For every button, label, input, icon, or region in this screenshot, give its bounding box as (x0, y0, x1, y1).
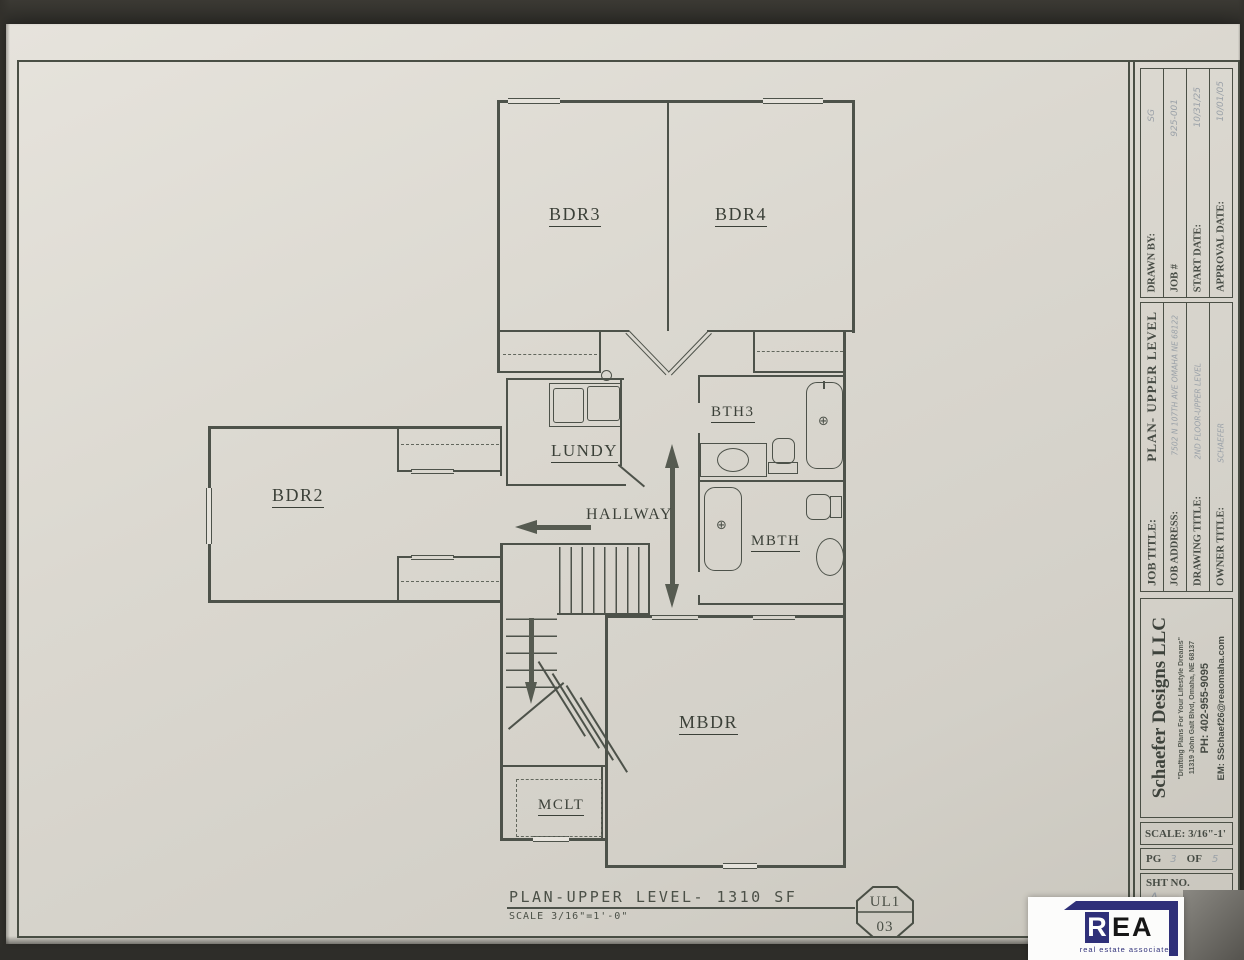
plan-title: PLAN-UPPER LEVEL- 1310 SF (509, 888, 797, 906)
closet-door-leaf (411, 469, 454, 474)
title-block-divider (1128, 60, 1130, 934)
drawn-by-label: DRAWN BY: (1147, 233, 1158, 292)
wall (397, 556, 412, 558)
wall (605, 615, 652, 618)
logo-r-box: R (1085, 912, 1109, 943)
job-title-value: PLAN- UPPER LEVEL (1144, 311, 1160, 462)
tub-drain-icon: ⊕ (716, 518, 727, 533)
toilet-base (768, 462, 798, 474)
firm-tagline-col: "Drafting Plans For Your Lifestyle Dream… (1176, 603, 1187, 813)
arrow-up-icon (665, 444, 679, 468)
plan-title-underline (507, 907, 855, 909)
sink-basin (816, 538, 844, 576)
room-label-mbth: MBTH (751, 533, 800, 552)
wall (397, 428, 399, 472)
firm-email-col: EM: SSchaef26@reaomaha.com (1212, 603, 1230, 813)
room-label-mbdr: MBDR (679, 712, 738, 735)
drawing-title-label: DRAWING TITLE: (1193, 496, 1204, 586)
titleblock-meta-box: SG DRAWN BY: 925-001 JOB # 10/31/25 STAR… (1140, 68, 1233, 298)
firm-email: EM: SSchaef26@reaomaha.com (1216, 636, 1227, 780)
washer-icon (553, 388, 584, 423)
room-label-bdr3: BDR3 (549, 204, 601, 227)
pg-label: PG (1141, 853, 1161, 865)
meta-col-start-date: 10/31/25 START DATE: (1186, 69, 1209, 297)
wall (707, 330, 855, 332)
owner-title-label: OWNER TITLE: (1216, 507, 1227, 586)
hallway-left-arrow-shaft (536, 525, 591, 530)
logo-letter-r: R (1087, 912, 1107, 942)
wall (497, 100, 500, 373)
wall (843, 331, 846, 868)
approval-date-value: 10/01/05 (1216, 81, 1226, 121)
job-title-label: JOB TITLE: (1145, 519, 1160, 586)
wall (453, 470, 502, 472)
firm-address-col: 11319 John Galt Blvd, Omaha, NE 68137 (1187, 603, 1198, 813)
logo-letter-e: E (1112, 912, 1130, 943)
titleblock-scale-box: SCALE: 3/16"-1' (1140, 822, 1233, 845)
wall (453, 556, 502, 558)
firm-address: 11319 John Galt Blvd, Omaha, NE 68137 (1189, 641, 1196, 774)
job-address-value: 7502 N 107TH AVE OMAHA NE 68122 (1171, 315, 1180, 456)
wall (208, 600, 502, 603)
wall (753, 332, 755, 373)
drawing-border-frame (17, 60, 1240, 938)
of-number: 5 (1202, 854, 1218, 865)
plan-scale-note: SCALE 3/16"=1'-0" (509, 911, 628, 922)
titles-col-drawing-title: 2ND FLOOR-UPPER LEVEL DRAWING TITLE: (1186, 303, 1209, 591)
titleblock-page-box: PG 3 OF 5 (1140, 848, 1233, 870)
wall (397, 558, 399, 602)
closet-shelf-dashed-outline (516, 779, 602, 837)
titles-col-job-address: 7502 N 107TH AVE OMAHA NE 68122 JOB ADDR… (1163, 303, 1186, 591)
wall (852, 100, 855, 333)
stairs-down-arrow-shaft (529, 618, 534, 684)
closet-rod-line (757, 351, 843, 352)
titles-col-owner-title: SCHAEFER OWNER TITLE: (1209, 303, 1232, 591)
firm-name: Schaefer Designs LLC (1149, 617, 1171, 798)
start-date-value: 10/31/25 (1193, 87, 1203, 127)
closet-rod-line (401, 444, 499, 445)
of-label: OF (1177, 853, 1202, 865)
arrow-down-icon (525, 682, 537, 704)
dryer-icon (587, 386, 620, 421)
window (206, 488, 212, 544)
meta-col-job-no: 925-001 JOB # (1163, 69, 1186, 297)
arrow-down-icon (665, 584, 679, 608)
pg-number: 3 (1161, 854, 1176, 865)
room-label-bth3: BTH3 (711, 404, 755, 423)
toilet-bowl (772, 438, 795, 464)
svg-text:UL1: UL1 (870, 894, 901, 910)
room-label-bdr2: BDR2 (272, 485, 324, 508)
firm-name-col: Schaefer Designs LLC (1143, 603, 1176, 813)
wall (500, 543, 503, 840)
titleblock-titles-box: PLAN- UPPER LEVEL JOB TITLE: 7502 N 107T… (1140, 302, 1233, 592)
wall (397, 470, 412, 472)
firm-tagline: "Drafting Plans For Your Lifestyle Dream… (1178, 637, 1185, 780)
wall (698, 480, 845, 482)
wall (500, 543, 650, 545)
job-address-label: JOB ADDRESS: (1170, 511, 1181, 586)
window (763, 98, 823, 104)
scale-value: SCALE: 3/16"-1' (1141, 828, 1226, 840)
titles-col-job-title: PLAN- UPPER LEVEL JOB TITLE: (1141, 303, 1163, 591)
start-date-label: START DATE: (1193, 224, 1204, 292)
wall (698, 375, 845, 377)
window (723, 863, 757, 869)
hallway-arrow-shaft (670, 466, 675, 588)
toilet-bowl (806, 494, 831, 520)
wall (698, 615, 753, 618)
utility-valve-icon (601, 370, 612, 381)
job-no-label: JOB # (1170, 264, 1181, 292)
arrow-left-icon (515, 520, 537, 534)
room-label-hallway: HALLWAY (586, 506, 673, 524)
sheet-number: 1 (1211, 891, 1219, 908)
window (508, 98, 560, 104)
tub-faucet-icon (823, 381, 825, 389)
titleblock-firm-box: Schaefer Designs LLC "Drafting Plans For… (1140, 598, 1233, 818)
room-label-lundy: LUNDY (551, 441, 618, 463)
wall (753, 371, 846, 373)
sink-basin (717, 448, 749, 472)
wall (667, 100, 669, 331)
blueprint-photo: ⊕ ⊕ BDR3 BDR4 BDR2 LUNDY HALLWAY BTH3 MB… (0, 0, 1244, 960)
wall (506, 378, 508, 486)
approval-date-label: APPROVAL DATE: (1216, 201, 1227, 292)
firm-phone: PH: 402-955-9095 (1199, 663, 1211, 754)
sheet-no-label: SHT NO. (1141, 874, 1232, 889)
closet-rod-line (401, 581, 499, 582)
photo-edge-top (0, 0, 1244, 26)
tub-drain-icon: ⊕ (818, 414, 829, 429)
logo-subtext: real estate associates (1074, 945, 1180, 954)
wall (497, 371, 601, 373)
door-leaf (753, 615, 795, 620)
closet-door-leaf (411, 555, 454, 560)
wall (208, 426, 502, 429)
wall (497, 330, 629, 332)
logo-letter-a: A (1132, 912, 1152, 943)
wall (698, 375, 700, 403)
meta-col-approval-date: 10/01/05 APPROVAL DATE: (1209, 69, 1232, 297)
closet-rod-line (503, 354, 597, 355)
detail-marker-octagon: UL1 03 (856, 886, 914, 938)
room-label-bdr4: BDR4 (715, 204, 767, 227)
stair-treads-upper (559, 547, 649, 613)
owner-title-value: SCHAEFER (1217, 423, 1226, 463)
drawing-title-value: 2ND FLOOR-UPPER LEVEL (1194, 363, 1203, 459)
wall (506, 484, 626, 486)
wall (698, 603, 845, 605)
firm-phone-col: PH: 402-955-9095 (1198, 603, 1213, 813)
rea-logo: R E A real estate associates (1028, 897, 1184, 960)
wall (500, 765, 605, 767)
job-no-value: 925-001 (1170, 99, 1180, 137)
wall (599, 332, 601, 373)
drawn-by-value: SG (1147, 109, 1157, 122)
door-leaf (652, 615, 698, 620)
svg-text:03: 03 (877, 919, 894, 935)
wall (500, 426, 502, 476)
toilet-tank (830, 496, 842, 518)
meta-col-drawn-by: SG DRAWN BY: (1141, 69, 1163, 297)
wall (795, 615, 846, 618)
title-block-divider-inner (1133, 60, 1135, 934)
